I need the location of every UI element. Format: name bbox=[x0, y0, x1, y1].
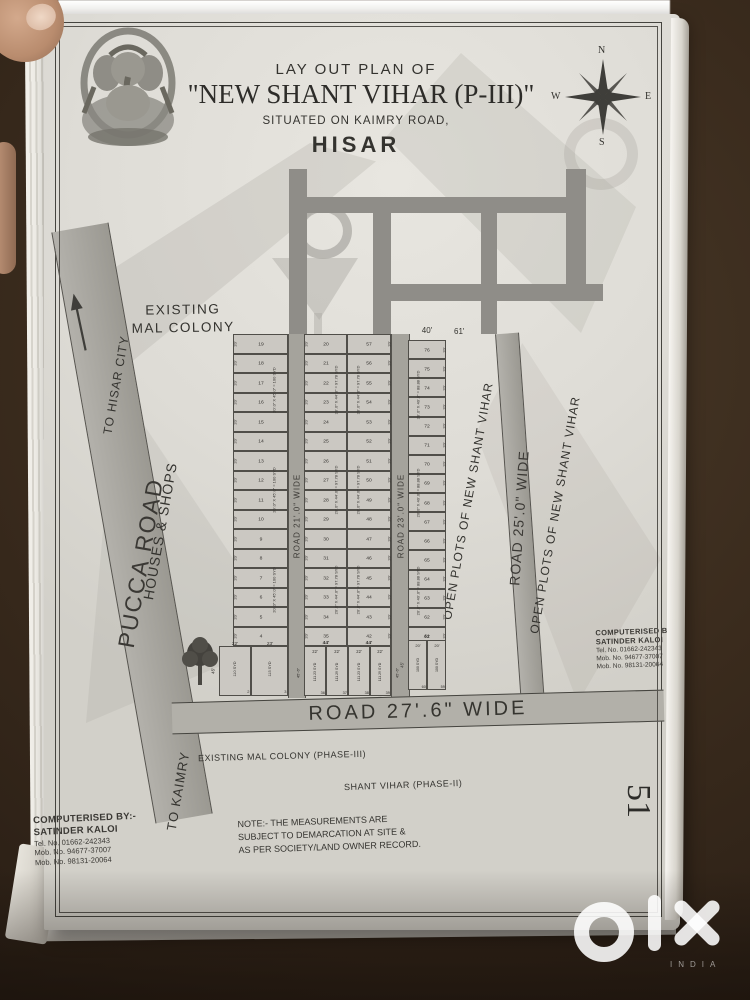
plot-width-tick: 20' bbox=[387, 361, 392, 366]
plan-page: LAY OUT PLAN OF "NEW SHANT VIHAR (P-III)… bbox=[44, 14, 680, 930]
plot-cell: 20'19 bbox=[233, 334, 288, 354]
plot-number: 22 bbox=[323, 380, 329, 386]
plot-number: 12 bbox=[258, 477, 264, 483]
plot-cell: 20'63 bbox=[408, 589, 446, 608]
plot-cell: 20'20 bbox=[304, 334, 347, 354]
plot-width-tick: 20' bbox=[304, 595, 309, 600]
road-segment bbox=[289, 197, 581, 213]
plot-number: 64 bbox=[424, 576, 430, 582]
plot-number: 8 bbox=[259, 555, 262, 561]
special-area-label: 100 SYD bbox=[416, 658, 420, 672]
special-area-label: 111.29 SYD bbox=[335, 663, 339, 681]
open-plots-label-1: OPEN PLOTS OF NEW SHANT VIHAR bbox=[440, 381, 496, 621]
plot-width-tick: 20' bbox=[304, 400, 309, 405]
special-depth-label: 45' bbox=[211, 668, 216, 674]
special-plot-number: 2 bbox=[247, 690, 249, 695]
plot-width-tick: 20' bbox=[233, 361, 238, 366]
plot-cell: 20'50 bbox=[347, 471, 391, 491]
plot-width-tick: 20' bbox=[304, 517, 309, 522]
plot-width-tick: 20' bbox=[442, 423, 447, 428]
plot-dimension-label: 20'.0" X 45'.0" = 100 SYD bbox=[271, 567, 276, 612]
plot-dimension-label: 20'.0" X 44'.0" = 97.78 SYD bbox=[356, 466, 361, 515]
plot-cell: 20'62 bbox=[408, 608, 446, 627]
special-span-tick: 44' bbox=[366, 640, 373, 646]
special-plot-cell-west: 115 SYD3 bbox=[251, 646, 288, 696]
plot-number: 68 bbox=[424, 500, 430, 506]
plot-cell: 20'72 bbox=[408, 417, 446, 436]
plot-number: 74 bbox=[424, 385, 430, 391]
plot-width-tick: 20' bbox=[387, 400, 392, 405]
plot-width-tick: 20' bbox=[304, 458, 309, 463]
computerised-right-line5: Mob. No. 98131-20064 bbox=[596, 661, 676, 672]
compass-s: S bbox=[599, 137, 605, 148]
plot-width-tick: 20' bbox=[442, 519, 447, 524]
plot-cell: 20'23 bbox=[304, 393, 347, 413]
special-depth-label: 45' bbox=[400, 662, 405, 667]
plot-cell: 20'11 bbox=[233, 490, 288, 510]
plot-width-tick: 20' bbox=[442, 404, 447, 409]
plot-width-tick: 20' bbox=[387, 497, 392, 502]
plot-cell: 20'25 bbox=[304, 432, 347, 452]
plot-width-tick: 20' bbox=[387, 536, 392, 541]
plot-dimension-label: 20'.0" X 40'.0" = 88.88 SYD bbox=[416, 567, 421, 616]
plot-cell: 20'47 bbox=[347, 529, 391, 549]
plot-cell: 20'26 bbox=[304, 451, 347, 471]
plot-number: 5 bbox=[259, 614, 262, 620]
plot-number: 19 bbox=[258, 341, 264, 347]
special-width-tick: 22' bbox=[334, 649, 339, 654]
plot-cell: 20'5 bbox=[233, 607, 288, 627]
plot-number: 18 bbox=[258, 360, 264, 366]
plot-cell: 20'12 bbox=[233, 471, 288, 491]
plot-cell: 20'45 bbox=[347, 568, 391, 588]
plot-number: 31 bbox=[323, 555, 329, 561]
plot-width-tick: 20' bbox=[387, 478, 392, 483]
plot-width-tick: 20' bbox=[233, 595, 238, 600]
special-plot-number: 36 bbox=[321, 691, 325, 695]
plot-dimension-label: 20'.0" X 44'.0" = 97.78 SYD bbox=[356, 366, 361, 415]
east-row-width-header: 40' bbox=[408, 326, 446, 335]
plot-number: 56 bbox=[366, 360, 372, 366]
computerised-by-left: COMPUTERISED BY:- SATINDER KALOI Tel. No… bbox=[33, 811, 138, 867]
plot-cell: 20'13 bbox=[233, 451, 288, 471]
plot-cell: 20'7 bbox=[233, 568, 288, 588]
plot-dimension-label: 20'.0" X 44'.0" = 97.78 SYD bbox=[356, 565, 361, 614]
plot-cell: 20'71 bbox=[408, 436, 446, 455]
plot-number: 62 bbox=[424, 615, 430, 621]
plot-width-tick: 20' bbox=[387, 575, 392, 580]
paper-watermark-funnel bbox=[272, 258, 358, 320]
plot-width-tick: 20' bbox=[233, 458, 238, 463]
plot-width-tick: 20' bbox=[387, 634, 392, 639]
plot-cell: 20'14 bbox=[233, 432, 288, 452]
special-width-tick: 23' bbox=[266, 641, 272, 646]
plot-number: 20 bbox=[323, 341, 329, 347]
plot-number: 71 bbox=[424, 442, 430, 448]
plot-width-tick: 20' bbox=[233, 575, 238, 580]
plot-cell: 20'4 bbox=[233, 627, 288, 647]
plot-cell: 20'32 bbox=[304, 568, 347, 588]
plot-width-tick: 20' bbox=[304, 341, 309, 346]
plot-width-tick: 20' bbox=[442, 443, 447, 448]
plot-number: 63 bbox=[424, 595, 430, 601]
plot-cell: 20'10 bbox=[233, 510, 288, 530]
plot-width-tick: 20' bbox=[233, 380, 238, 385]
plot-number: 43 bbox=[366, 614, 372, 620]
plot-number: 10 bbox=[258, 516, 264, 522]
plot-width-tick: 20' bbox=[233, 556, 238, 561]
plot-width-tick: 20' bbox=[387, 439, 392, 444]
plot-number: 69 bbox=[424, 481, 430, 487]
plot-number: 30 bbox=[323, 536, 329, 542]
plot-cell: 20'52 bbox=[347, 432, 391, 452]
compass-w: W bbox=[551, 91, 560, 102]
plot-number: 24 bbox=[323, 419, 329, 425]
plot-cell: 20'51 bbox=[347, 451, 391, 471]
plot-width-tick: 20' bbox=[387, 517, 392, 522]
plot-number: 35 bbox=[323, 633, 329, 639]
plot-number: 45 bbox=[366, 575, 372, 581]
plot-number: 55 bbox=[366, 380, 372, 386]
road-segment bbox=[373, 213, 391, 336]
plot-cell: 20'43 bbox=[347, 607, 391, 627]
plot-cell: 20'28 bbox=[304, 490, 347, 510]
plot-cell: 20'70 bbox=[408, 455, 446, 474]
plot-width-tick: 20' bbox=[304, 478, 309, 483]
plan-location: SITUATED ON KAIMRY ROAD, bbox=[206, 115, 506, 127]
plot-number: 15 bbox=[258, 419, 264, 425]
plot-cell: 20'30 bbox=[304, 529, 347, 549]
special-span-tick: 44' bbox=[322, 640, 329, 646]
plot-width-tick: 20' bbox=[442, 385, 447, 390]
special-plot-number: 3 bbox=[284, 690, 286, 695]
plot-cell: 20'48 bbox=[347, 510, 391, 530]
plot-width-tick: 20' bbox=[233, 341, 238, 346]
plot-width-tick: 20' bbox=[233, 419, 238, 424]
special-width-tick: 22' bbox=[232, 641, 238, 646]
plot-width-tick: 20' bbox=[233, 536, 238, 541]
plot-width-tick: 20' bbox=[233, 634, 238, 639]
plot-cell: 20'16 bbox=[233, 393, 288, 413]
plot-number: 46 bbox=[366, 555, 372, 561]
plot-cell: 20'56 bbox=[347, 354, 391, 374]
plot-number: 11 bbox=[258, 497, 263, 503]
plot-number: 28 bbox=[323, 497, 329, 503]
plot-number: 29 bbox=[323, 516, 329, 522]
road-23-label: ROAD 23'.0" WIDE bbox=[396, 474, 405, 558]
special-plot-cell-west: 110 SYD2 bbox=[219, 646, 251, 696]
plot-width-tick: 20' bbox=[233, 517, 238, 522]
plot-cell: 20'69 bbox=[408, 474, 446, 493]
plot-width-tick: 20' bbox=[442, 615, 447, 620]
plot-cell: 20'68 bbox=[408, 493, 446, 512]
compass-star bbox=[553, 47, 653, 147]
special-width-tick: 22' bbox=[312, 649, 317, 654]
plot-dimension-label: 20'.0" X 44'.0" = 97.78 SYD bbox=[334, 366, 339, 415]
plot-dimension-label: 20'.0" X 45'.0" = 100 SYD bbox=[271, 367, 276, 412]
existing-mal-colony: EXISTING MAL COLONY bbox=[118, 300, 249, 339]
special-depth-label: 45'-6" bbox=[395, 668, 400, 678]
plot-number: 14 bbox=[258, 438, 264, 444]
special-width-tick: 22' bbox=[356, 649, 361, 654]
road-27-label: ROAD 27'.6" WIDE bbox=[172, 694, 664, 730]
plot-cell: 20'24 bbox=[304, 412, 347, 432]
plot-width-tick: 20' bbox=[442, 557, 447, 562]
plot-number: 4 bbox=[259, 633, 262, 639]
plot-cell: 20'55 bbox=[347, 373, 391, 393]
plot-width-tick: 20' bbox=[442, 462, 447, 467]
plot-width-tick: 20' bbox=[387, 380, 392, 385]
plot-dimension-label: 20'.0" X 40'.0" = 88.88 SYD bbox=[416, 469, 421, 518]
open-plots-label-2: OPEN PLOTS OF NEW SHANT VIHAR bbox=[527, 395, 583, 635]
plot-number: 44 bbox=[366, 594, 372, 600]
plot-width-tick: 20' bbox=[233, 478, 238, 483]
existing-mal-colony-line2: MAL COLONY bbox=[132, 319, 235, 336]
plot-width-tick: 20' bbox=[233, 439, 238, 444]
plot-width-tick: 20' bbox=[304, 497, 309, 502]
plot-number: 9 bbox=[259, 536, 262, 542]
computerised-by-right: COMPUTERISED BY- SATINDER KALOI Tel. No.… bbox=[595, 626, 676, 672]
plot-dimension-label: 20'.0" X 45'.0" = 100 SYD bbox=[271, 467, 276, 512]
plot-width-tick: 20' bbox=[442, 481, 447, 486]
plot-number: 34 bbox=[323, 614, 329, 620]
plot-width-tick: 20' bbox=[233, 400, 238, 405]
plot-width-tick: 20' bbox=[387, 556, 392, 561]
plot-width-tick: 20' bbox=[304, 575, 309, 580]
road-segment bbox=[289, 169, 307, 336]
plot-number: 23 bbox=[323, 399, 329, 405]
plot-cell: 20'54 bbox=[347, 393, 391, 413]
plot-width-tick: 20' bbox=[304, 536, 309, 541]
plot-width-tick: 20' bbox=[304, 556, 309, 561]
plot-number: 70 bbox=[424, 462, 430, 468]
special-area-label: 115 SYD bbox=[267, 662, 271, 677]
plot-cell: 20'15 bbox=[233, 412, 288, 432]
olx-bar-glyph bbox=[648, 895, 661, 951]
road-21-label: ROAD 21'.0" WIDE bbox=[293, 474, 302, 558]
plot-width-tick: 20' bbox=[233, 614, 238, 619]
compass-rose: N S W E bbox=[553, 47, 653, 147]
plot-dimension-label: 20'.0" X 40'.0" = 88.88 SYD bbox=[416, 371, 421, 420]
plot-cell: 20'27 bbox=[304, 471, 347, 491]
plot-number: 17 bbox=[258, 380, 264, 386]
special-plot-number: 37 bbox=[342, 691, 346, 695]
plot-width-tick: 20' bbox=[233, 497, 238, 502]
plan-frame: LAY OUT PLAN OF "NEW SHANT VIHAR (P-III)… bbox=[55, 22, 662, 917]
olx-country-label: INDIA bbox=[670, 960, 721, 969]
special-area-label: 111.23 SYD bbox=[357, 663, 361, 681]
plot-number: 49 bbox=[366, 497, 372, 503]
existing-mal-colony-line1: EXISTING bbox=[145, 301, 220, 317]
plot-cell: 20'76 bbox=[408, 340, 446, 359]
plot-number: 50 bbox=[366, 477, 372, 483]
plot-cell: 20'34 bbox=[304, 607, 347, 627]
plot-dimension-label: 20'.0" X 44'.0" = 97.78 SYD bbox=[334, 565, 339, 614]
special-plot-number: 38 bbox=[364, 691, 368, 695]
plot-number: 32 bbox=[323, 575, 329, 581]
plot-cell: 20'8 bbox=[233, 549, 288, 569]
plot-width-tick: 20' bbox=[387, 341, 392, 346]
plot-cell: 20'73 bbox=[408, 397, 446, 416]
plot-number: 27 bbox=[323, 477, 329, 483]
plan-subtitle: LAY OUT PLAN OF bbox=[206, 61, 506, 78]
plot-cell: 20'21 bbox=[304, 354, 347, 374]
road-segment bbox=[481, 213, 497, 334]
plot-number: 7 bbox=[259, 575, 262, 581]
plot-number: 16 bbox=[258, 399, 264, 405]
existing-colony-phase3-label: EXISTING MAL COLONY (PHASE-III) bbox=[198, 749, 366, 763]
plot-cell: 20'33 bbox=[304, 588, 347, 608]
page-number: 51 bbox=[619, 784, 657, 818]
plot-number: 42 bbox=[366, 633, 372, 639]
plot-number: 51 bbox=[366, 458, 372, 464]
plot-width-tick: 20' bbox=[304, 614, 309, 619]
plot-width-tick: 20' bbox=[442, 538, 447, 543]
plot-number: 13 bbox=[258, 458, 264, 464]
plot-width-tick: 20' bbox=[387, 595, 392, 600]
plot-cell: 20'67 bbox=[408, 512, 446, 531]
page-title: "NEW SHANT VIHAR (P-III)" bbox=[141, 79, 581, 110]
plot-cell: 20'18 bbox=[233, 354, 288, 374]
special-plot-number: 60 bbox=[422, 685, 426, 689]
plot-cell: 20'49 bbox=[347, 490, 391, 510]
photo-of-layout-plan: LAY OUT PLAN OF "NEW SHANT VIHAR (P-III)… bbox=[0, 0, 750, 1000]
plot-cell: 20'17 bbox=[233, 373, 288, 393]
special-area-label: 111.29 SYD bbox=[378, 663, 382, 681]
plot-cell: 20'66 bbox=[408, 531, 446, 550]
plot-width-tick: 20' bbox=[442, 500, 447, 505]
plot-width-tick: 20' bbox=[387, 419, 392, 424]
plot-width-tick: 20' bbox=[442, 347, 447, 352]
plot-cell: 20'6 bbox=[233, 588, 288, 608]
plot-cell: 20'74 bbox=[408, 378, 446, 397]
plan-city: HISAR bbox=[206, 132, 506, 158]
special-depth-label: 45'-6" bbox=[296, 668, 301, 678]
plot-number: 47 bbox=[366, 536, 372, 542]
compass-n: N bbox=[598, 45, 605, 56]
plot-cell: 20'44 bbox=[347, 588, 391, 608]
special-plot-number: 59 bbox=[441, 685, 445, 689]
finger-left-edge bbox=[0, 142, 16, 274]
plot-width-tick: 20' bbox=[442, 576, 447, 581]
plot-number: 54 bbox=[366, 399, 372, 405]
road-segment bbox=[566, 169, 586, 301]
special-width-tick: 20' bbox=[415, 643, 420, 648]
plot-cell: 20'29 bbox=[304, 510, 347, 530]
olx-o-glyph bbox=[574, 902, 634, 962]
plot-number: 53 bbox=[366, 419, 372, 425]
shant-vihar-phase2-label: SHANT VIHAR (PHASE-II) bbox=[344, 778, 463, 792]
plot-width-tick: 20' bbox=[387, 458, 392, 463]
plot-width-tick: 20' bbox=[304, 380, 309, 385]
special-area-label: 111.23 SYD bbox=[313, 663, 317, 681]
plot-number: 33 bbox=[323, 594, 329, 600]
plot-dimension-label: 20'.0" X 44'.0" = 97.78 SYD bbox=[334, 466, 339, 515]
compass-e: E bbox=[645, 91, 651, 102]
plot-cell: 20'65 bbox=[408, 550, 446, 569]
tree-icon bbox=[181, 635, 219, 689]
plot-cell: 20'53 bbox=[347, 412, 391, 432]
olx-watermark: INDIA bbox=[566, 878, 750, 986]
plot-width-tick: 20' bbox=[304, 419, 309, 424]
plot-cell: 20'75 bbox=[408, 359, 446, 378]
plot-width-tick: 20' bbox=[442, 634, 447, 639]
plot-cell: 20'31 bbox=[304, 549, 347, 569]
plot-number: 75 bbox=[424, 366, 430, 372]
plot-width-tick: 20' bbox=[387, 614, 392, 619]
gap-width-label: 61' bbox=[454, 327, 464, 336]
special-area-label: 110 SYD bbox=[233, 662, 237, 677]
plot-cell: 20'9 bbox=[233, 529, 288, 549]
plot-number: 76 bbox=[424, 347, 430, 353]
special-area-label: 100 SYD bbox=[435, 658, 439, 672]
plot-number: 65 bbox=[424, 557, 430, 563]
special-width-tick: 20' bbox=[434, 643, 439, 648]
plot-number: 26 bbox=[323, 458, 329, 464]
special-plot-number: 39 bbox=[386, 691, 390, 695]
plot-width-tick: 20' bbox=[304, 361, 309, 366]
plot-width-tick: 20' bbox=[442, 366, 447, 371]
plot-number: 21 bbox=[323, 360, 329, 366]
plot-number: 73 bbox=[424, 404, 430, 410]
plot-cell: 20'64 bbox=[408, 570, 446, 589]
plot-number: 48 bbox=[366, 516, 372, 522]
plot-cell: 20'22 bbox=[304, 373, 347, 393]
plot-cell: 20'57 bbox=[347, 334, 391, 354]
plot-number: 67 bbox=[424, 519, 430, 525]
special-span-tick: 40' bbox=[424, 634, 430, 640]
measurement-note: NOTE:- THE MEASUREMENTS ARE SUBJECT TO D… bbox=[237, 812, 421, 857]
plot-width-tick: 20' bbox=[304, 634, 309, 639]
road-27-band: ROAD 27'.6" WIDE bbox=[172, 690, 665, 735]
plot-width-tick: 20' bbox=[304, 439, 309, 444]
plot-number: 57 bbox=[366, 341, 372, 347]
plot-number: 52 bbox=[366, 438, 372, 444]
plot-cell: 20'46 bbox=[347, 549, 391, 569]
plot-number: 25 bbox=[323, 438, 329, 444]
plot-number: 66 bbox=[424, 538, 430, 544]
plot-number: 72 bbox=[424, 423, 430, 429]
special-width-tick: 22' bbox=[378, 649, 383, 654]
plot-width-tick: 20' bbox=[442, 596, 447, 601]
olx-x-glyph bbox=[666, 892, 728, 954]
plot-number: 6 bbox=[259, 594, 262, 600]
